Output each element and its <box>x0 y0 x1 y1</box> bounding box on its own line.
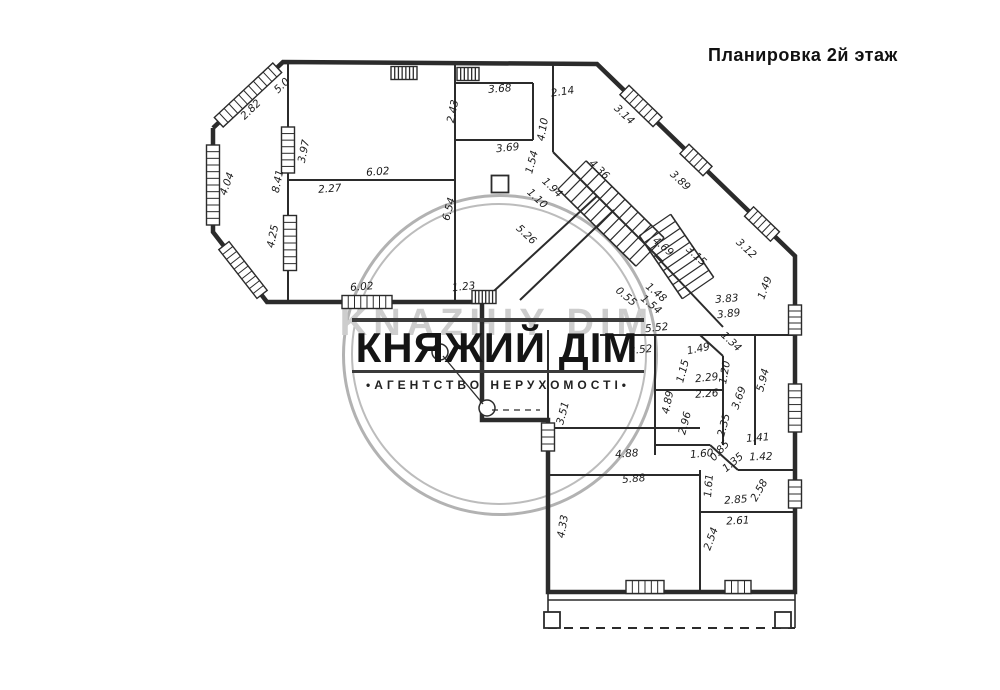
dimension-label: 8.41 <box>270 169 287 194</box>
window-hatch <box>284 216 297 271</box>
dimension-label: 2.96 <box>676 410 694 436</box>
dimension-label: 3.69 <box>730 385 749 411</box>
dimension-label: 3.12 <box>733 236 759 261</box>
dimension-label: 4.89 <box>660 389 677 415</box>
window-hatch <box>472 291 496 304</box>
dimension-label: 3.51 <box>554 400 572 426</box>
window-hatch <box>789 480 802 508</box>
balcony-post <box>544 612 560 628</box>
dimension-label: 1.34 <box>718 329 743 354</box>
watermark-rule-bottom <box>352 370 644 373</box>
dimension-label: 4.25 <box>265 223 282 249</box>
dimension-label: 2.14 <box>550 84 575 99</box>
floor-plan-page: Планировка 2й этаж KNAZHIY DIM 2.825.03.… <box>0 0 1000 690</box>
dimension-label: 1.49 <box>686 341 712 358</box>
window-hatch <box>542 423 555 451</box>
dimension-label: 2.43 <box>445 99 462 124</box>
staircase <box>558 161 664 266</box>
dimension-label: 3.97 <box>296 138 313 164</box>
window-hatch <box>391 67 417 80</box>
dimension-label: 2.35 <box>715 412 733 438</box>
dimension-label: 6.02 <box>366 165 390 179</box>
dimension-label: 3.89 <box>716 307 741 321</box>
window-hatch <box>725 581 751 594</box>
dimension-label: 1.49 <box>756 275 775 301</box>
dimension-label: 1.54 <box>523 149 541 175</box>
dimension-label: 5.94 <box>754 367 772 393</box>
window-hatch <box>789 305 802 335</box>
dimension-label: 6.02 <box>350 280 374 294</box>
dimension-label: 3.89 <box>667 168 693 193</box>
dimension-label: 2.27 <box>318 182 342 196</box>
watermark-tagline: •АГЕНТСТВО НЕРУХОМОСТІ• <box>340 378 656 392</box>
dimension-label: 4.88 <box>615 447 639 461</box>
dimension-label: 4.69 <box>650 235 676 259</box>
window-hatch <box>219 242 267 299</box>
window-hatch <box>457 68 479 81</box>
dimension-label: 2.58 <box>748 477 770 504</box>
watermark-rule-top <box>352 318 644 322</box>
dimension-label: 3.69 <box>495 141 520 155</box>
dimension-label: 5.88 <box>622 472 647 486</box>
window-hatch <box>342 296 392 309</box>
dimension-label: 2.85 <box>724 493 748 507</box>
column-marker <box>492 176 509 193</box>
dimension-label: 0.55 <box>613 285 639 309</box>
dimension-label: 2.29 <box>694 371 719 385</box>
window-hatch <box>680 144 712 176</box>
window-hatch <box>626 581 664 594</box>
dimension-label: 5.26 <box>513 222 539 247</box>
dimension-label: 3.68 <box>488 82 512 96</box>
dimension-label: 1.20 <box>717 360 733 385</box>
dimension-label: 1.23 <box>451 280 476 294</box>
window-hatch <box>745 207 780 241</box>
dimension-label: 3.83 <box>715 292 739 306</box>
dimension-label: 4.33 <box>555 514 571 539</box>
dimension-label: 2.54 <box>702 526 721 552</box>
balcony-post <box>775 612 791 628</box>
dimension-label: 2.61 <box>726 514 750 527</box>
dimension-label: 1.41 <box>746 431 770 445</box>
window-hatch <box>789 384 802 432</box>
wall <box>655 255 723 327</box>
dimension-label: 4.10 <box>535 117 551 142</box>
dimension-label: 1.61 <box>702 474 716 498</box>
watermark-name: КНЯЖИЙ ДІМ <box>330 324 664 372</box>
dimension-label: 4.04 <box>218 171 237 197</box>
wall <box>482 196 597 302</box>
dimension-label: 1.42 <box>749 451 773 464</box>
window-hatch <box>282 127 295 173</box>
balcony <box>544 592 795 628</box>
dimension-label: 2.26 <box>695 387 719 401</box>
window-hatch <box>207 145 220 225</box>
dimension-label: 1.15 <box>674 358 692 384</box>
